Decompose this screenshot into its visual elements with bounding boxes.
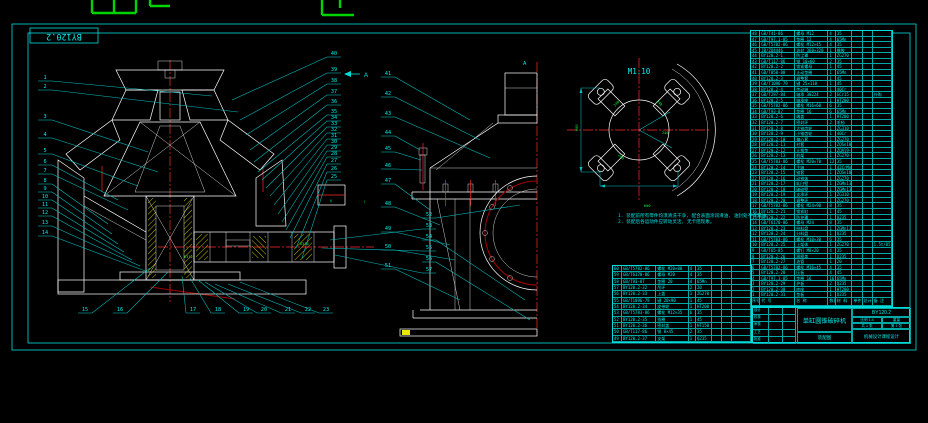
balloon-number: 11 [42, 202, 48, 208]
title-cell: 单缸圆锥破碎机 [797, 308, 852, 332]
spider-view: M1:10 240 240 240 240 [567, 58, 715, 208]
bom-cell: 序号 [751, 298, 760, 306]
balloon-number: 53 [426, 223, 432, 229]
balloon-number: 43 [385, 111, 391, 117]
balloon-number: 45 [385, 146, 391, 152]
note-line: 2. 装配后各运动件应转动灵活, 无卡阻现象。 [618, 220, 848, 226]
parts-table-extra: 60GB/T5782-86螺栓 M20×8043559GB/T6170-86螺母… [612, 265, 752, 343]
balloon-number: 46 [385, 163, 391, 169]
cropped-text-artifact [92, 0, 354, 15]
balloon-number: 5 [43, 148, 46, 154]
balloon-number: 25 [331, 174, 337, 180]
balloon-number: 41 [385, 71, 391, 77]
svg-text:A: A [523, 61, 527, 67]
parts-table-main: 48GB/T41-86螺母 M1243547GB/T97.1-85垫圈 1246… [750, 30, 893, 307]
balloon-number: 14 [42, 230, 48, 236]
svg-text:240: 240 [662, 131, 669, 135]
balloon-number: 28 [331, 151, 337, 157]
sig-cell [769, 322, 783, 329]
elevation-view: A [400, 61, 537, 336]
svg-text:240: 240 [613, 100, 620, 107]
balloon-number: 54 [426, 234, 432, 240]
sig-cell [783, 308, 796, 315]
drawing-number-cell: BY120.2 [852, 308, 911, 317]
view-arrow-a: A [344, 71, 368, 79]
bom-cell [712, 336, 722, 342]
svg-text:240: 240 [617, 153, 624, 160]
balloon-number: 27 [331, 158, 337, 164]
sig-cell: 设计 [753, 308, 769, 315]
balloon-number: 50 [385, 244, 391, 250]
balloon-number: 42 [385, 91, 391, 97]
bom-cell [732, 336, 751, 342]
balloon-number: 20 [261, 307, 267, 313]
bom-cell: 代 号 [760, 298, 795, 306]
bom-cell: 49 [613, 336, 622, 342]
balloon-number: 3 [43, 114, 46, 120]
section-tag: Ⅰ [364, 200, 365, 204]
balloon-number: 38 [331, 78, 337, 84]
bearing-tag: 6312 [184, 255, 193, 259]
bom-cell: 名 称 [795, 298, 828, 306]
balloon-number: 8 [43, 178, 46, 184]
sig-cell [769, 330, 783, 337]
sig-cell [769, 315, 783, 322]
balloon-number: 36 [331, 99, 337, 105]
balloon-number: 9 [43, 186, 46, 192]
frame-corner-label: BY120.2 [46, 31, 82, 41]
balloon-number: 40 [331, 51, 337, 57]
balloon-number: 16 [117, 307, 123, 313]
sig-cell [783, 322, 796, 329]
sig-cell: 校核 [753, 315, 769, 322]
balloon-number: 57 [426, 267, 432, 273]
balloon-number: 17 [190, 307, 196, 313]
balloon-number: 6 [43, 159, 46, 165]
bearing-tag: 6310 [300, 242, 309, 246]
institution-cell: 机械设计课程设计 [852, 329, 911, 344]
balloon-number: 2 [43, 84, 46, 90]
balloon-number: 15 [82, 307, 88, 313]
balloon-number: 18 [215, 307, 221, 313]
balloon-number: 37 [331, 89, 337, 95]
bom-cell: 备 注 [873, 298, 892, 306]
sig-cell [769, 308, 783, 315]
balloon-number: 23 [323, 307, 329, 313]
bom-cell: 支架 [656, 336, 688, 342]
cad-canvas[interactable]: BY120.2 [0, 0, 928, 423]
svg-text:600: 600 [644, 204, 651, 208]
balloon-number: 12 [42, 210, 48, 216]
signature-grid: 设计校核审核工艺批准 [753, 308, 797, 344]
svg-text:Ⅱ: Ⅱ [330, 199, 332, 203]
balloon-number: 10 [42, 194, 48, 200]
balloon-number: 55 [426, 245, 432, 251]
sig-cell [783, 337, 796, 344]
bom-cell: 总计 [863, 298, 873, 306]
bom-cell: Q235 [696, 336, 712, 342]
balloon-number: 48 [385, 201, 391, 207]
title-block: 设计校核审核工艺批准 单缸圆锥破碎机 装配图 BY120.2 比例 1:4 重量… [752, 307, 910, 343]
bom-cell: 1 [689, 336, 696, 342]
sig-cell: 工艺 [753, 330, 769, 337]
sig-cell: 批准 [753, 337, 769, 344]
balloon-number: 1 [43, 75, 46, 81]
svg-text:600: 600 [575, 125, 579, 132]
bom-cell: 数量 [828, 298, 835, 306]
balloon-number: 4 [43, 132, 46, 138]
bom-cell: 单件 [852, 298, 862, 306]
balloon-number: 47 [385, 178, 391, 184]
spider-dimensions: 600 600 [575, 88, 678, 208]
sig-cell [783, 315, 796, 322]
sig-cell [769, 337, 783, 344]
balloon-number: 52 [426, 212, 432, 218]
balloon-number: 26 [331, 166, 337, 172]
svg-text:A: A [364, 73, 368, 79]
balloon-number: 39 [331, 67, 337, 73]
balloon-number: 13 [42, 220, 48, 226]
balloon-number: 44 [385, 130, 391, 136]
sig-cell [783, 330, 796, 337]
bom-cell: 材 料 [836, 298, 853, 306]
balloon-annotations: 1234567891011121314151617181920212223403… [38, 51, 530, 320]
technical-notes: 1. 装配前所有零件均须清洗干净, 配合表面涂润滑油, 油封处不得漏油。 2. … [618, 214, 848, 226]
sig-cell: 审核 [753, 322, 769, 329]
balloon-number: 7 [43, 168, 46, 174]
balloon-number: 49 [385, 226, 391, 232]
subtitle-cell: 装配图 [797, 332, 852, 344]
bom-cell: BY120.2-37 [622, 336, 656, 342]
bom-cell [722, 336, 732, 342]
balloon-number: 56 [426, 256, 432, 262]
